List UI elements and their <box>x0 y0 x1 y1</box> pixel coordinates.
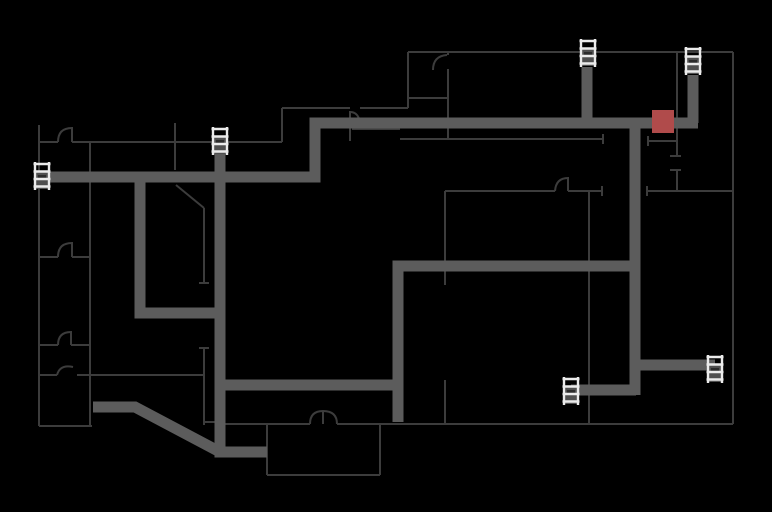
explored-path <box>220 150 267 452</box>
explored-path <box>140 177 220 313</box>
explored-path <box>93 407 220 452</box>
explored-path <box>398 266 636 422</box>
game-map <box>0 0 772 512</box>
door-arc <box>58 243 72 257</box>
door-arc <box>58 128 72 142</box>
door-arc <box>433 55 447 70</box>
explored-path <box>42 123 698 177</box>
player-marker <box>652 110 674 133</box>
door-arc <box>555 178 568 191</box>
door-arc <box>310 411 323 424</box>
automap-screen <box>0 0 772 512</box>
door-arc <box>57 366 73 375</box>
door-arc <box>58 332 71 345</box>
wall-segment <box>176 185 204 208</box>
door-arc <box>323 411 337 424</box>
